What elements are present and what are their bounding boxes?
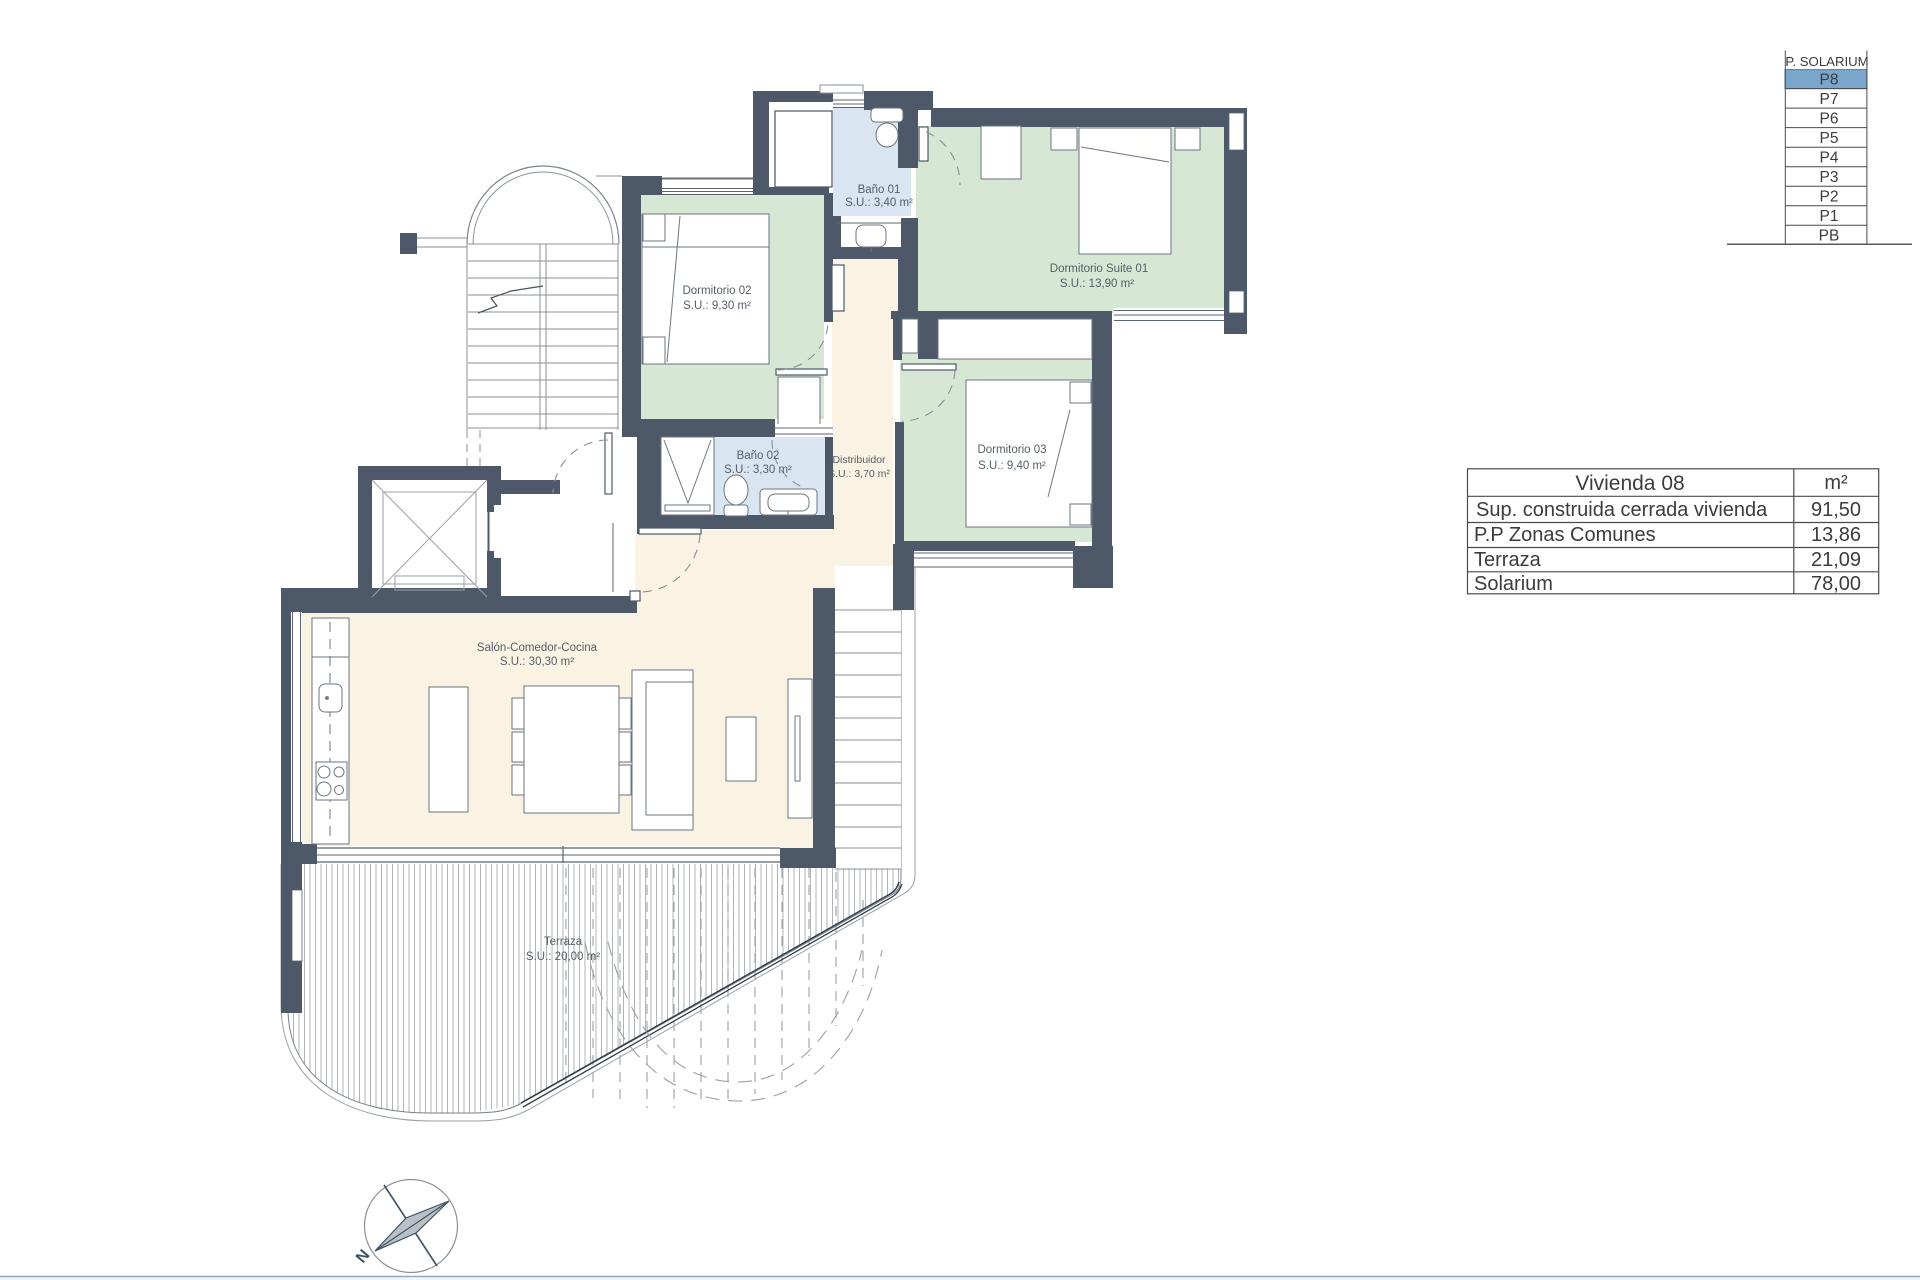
svg-text:Baño 01: Baño 01: [858, 184, 901, 196]
svg-text:P. SOLARIUM: P. SOLARIUM: [1785, 54, 1868, 69]
svg-text:S.U.: 20,00 m²: S.U.: 20,00 m²: [526, 951, 600, 963]
svg-text:Terraza: Terraza: [1474, 549, 1542, 571]
svg-text:P8: P8: [1820, 72, 1839, 89]
svg-text:P1: P1: [1820, 208, 1839, 225]
svg-text:P5: P5: [1820, 130, 1839, 147]
svg-text:Dormitorio Suite 01: Dormitorio Suite 01: [1050, 263, 1148, 275]
svg-text:78,00: 78,00: [1811, 573, 1861, 595]
svg-text:S.U.: 30,30 m²: S.U.: 30,30 m²: [500, 656, 574, 668]
svg-text:Salón-Comedor-Cocina: Salón-Comedor-Cocina: [477, 642, 598, 654]
svg-text:P.P Zonas Comunes: P.P Zonas Comunes: [1474, 524, 1656, 546]
svg-text:S.U.: 3,30 m²: S.U.: 3,30 m²: [724, 464, 792, 476]
svg-text:PB: PB: [1819, 228, 1840, 245]
svg-text:21,09: 21,09: [1811, 549, 1861, 571]
svg-text:Dormitorio 02: Dormitorio 02: [682, 285, 751, 297]
svg-text:Vivienda 08: Vivienda 08: [1575, 472, 1684, 495]
svg-text:m²: m²: [1824, 472, 1848, 494]
svg-text:P2: P2: [1820, 189, 1839, 206]
svg-text:P3: P3: [1820, 169, 1839, 186]
svg-text:S.U.: 9,40 m²: S.U.: 9,40 m²: [978, 460, 1046, 472]
svg-text:Sup. construida cerrada vivien: Sup. construida cerrada vivienda: [1476, 499, 1768, 521]
svg-text:13,86: 13,86: [1811, 524, 1861, 546]
svg-text:91,50: 91,50: [1811, 499, 1861, 521]
svg-text:Baño 02: Baño 02: [737, 450, 780, 462]
svg-text:P6: P6: [1820, 111, 1839, 128]
svg-text:Dormitorio 03: Dormitorio 03: [977, 444, 1046, 456]
svg-text:Terraza: Terraza: [544, 936, 583, 948]
svg-text:Distribuidor: Distribuidor: [832, 454, 886, 466]
svg-text:S.U.: 13,90 m²: S.U.: 13,90 m²: [1060, 278, 1134, 290]
svg-text:Solarium: Solarium: [1474, 573, 1553, 595]
svg-text:S.U.: 9,30 m²: S.U.: 9,30 m²: [683, 300, 751, 312]
svg-text:P7: P7: [1820, 91, 1839, 108]
svg-text:S.U.: 3,40 m²: S.U.: 3,40 m²: [845, 197, 913, 209]
svg-text:P4: P4: [1820, 150, 1839, 167]
svg-text:S.U.: 3,70 m²: S.U.: 3,70 m²: [828, 468, 890, 480]
